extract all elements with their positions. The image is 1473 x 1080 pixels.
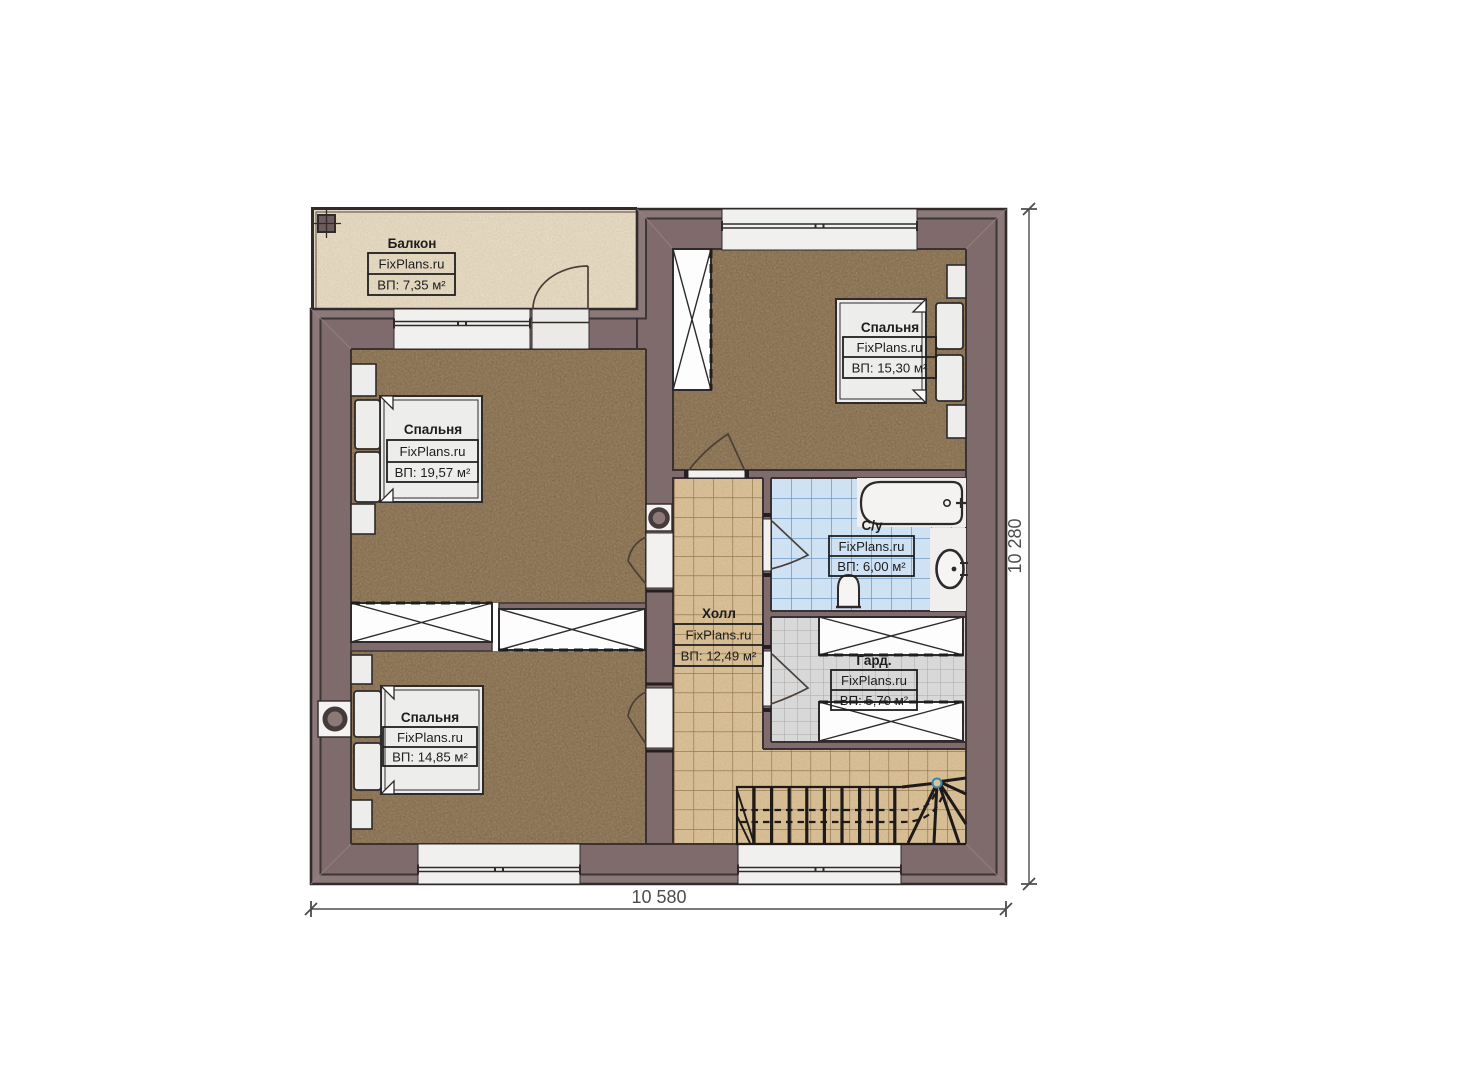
svg-text:FixPlans.ru: FixPlans.ru bbox=[379, 257, 445, 272]
svg-text:ВП: 15,30 м²: ВП: 15,30 м² bbox=[852, 361, 928, 376]
svg-text:ВП: 12,49 м²: ВП: 12,49 м² bbox=[681, 649, 757, 664]
svg-text:ВП: 19,57 м²: ВП: 19,57 м² bbox=[395, 465, 471, 480]
svg-text:FixPlans.ru: FixPlans.ru bbox=[857, 340, 923, 355]
svg-text:Гард.: Гард. bbox=[856, 653, 891, 668]
svg-text:ВП: 14,85 м²: ВП: 14,85 м² bbox=[392, 750, 468, 765]
svg-text:FixPlans.ru: FixPlans.ru bbox=[400, 444, 466, 459]
svg-text:FixPlans.ru: FixPlans.ru bbox=[686, 628, 752, 643]
svg-text:FixPlans.ru: FixPlans.ru bbox=[841, 673, 907, 688]
svg-text:ВП: 7,35 м²: ВП: 7,35 м² bbox=[377, 278, 446, 293]
svg-text:FixPlans.ru: FixPlans.ru bbox=[397, 730, 463, 745]
svg-text:Холл: Холл bbox=[702, 606, 736, 621]
svg-text:ВП: 6,00 м²: ВП: 6,00 м² bbox=[837, 559, 906, 574]
svg-text:FixPlans.ru: FixPlans.ru bbox=[839, 539, 905, 554]
svg-text:Спальня: Спальня bbox=[404, 422, 462, 437]
svg-text:Спальня: Спальня bbox=[861, 320, 919, 335]
svg-text:Балкон: Балкон bbox=[388, 236, 437, 251]
svg-text:С/у: С/у bbox=[861, 518, 883, 533]
svg-text:10 280: 10 280 bbox=[1005, 518, 1025, 573]
svg-text:Спальня: Спальня bbox=[401, 710, 459, 725]
svg-text:10 580: 10 580 bbox=[631, 887, 686, 907]
svg-text:ВП: 5,70 м²: ВП: 5,70 м² bbox=[840, 693, 909, 708]
